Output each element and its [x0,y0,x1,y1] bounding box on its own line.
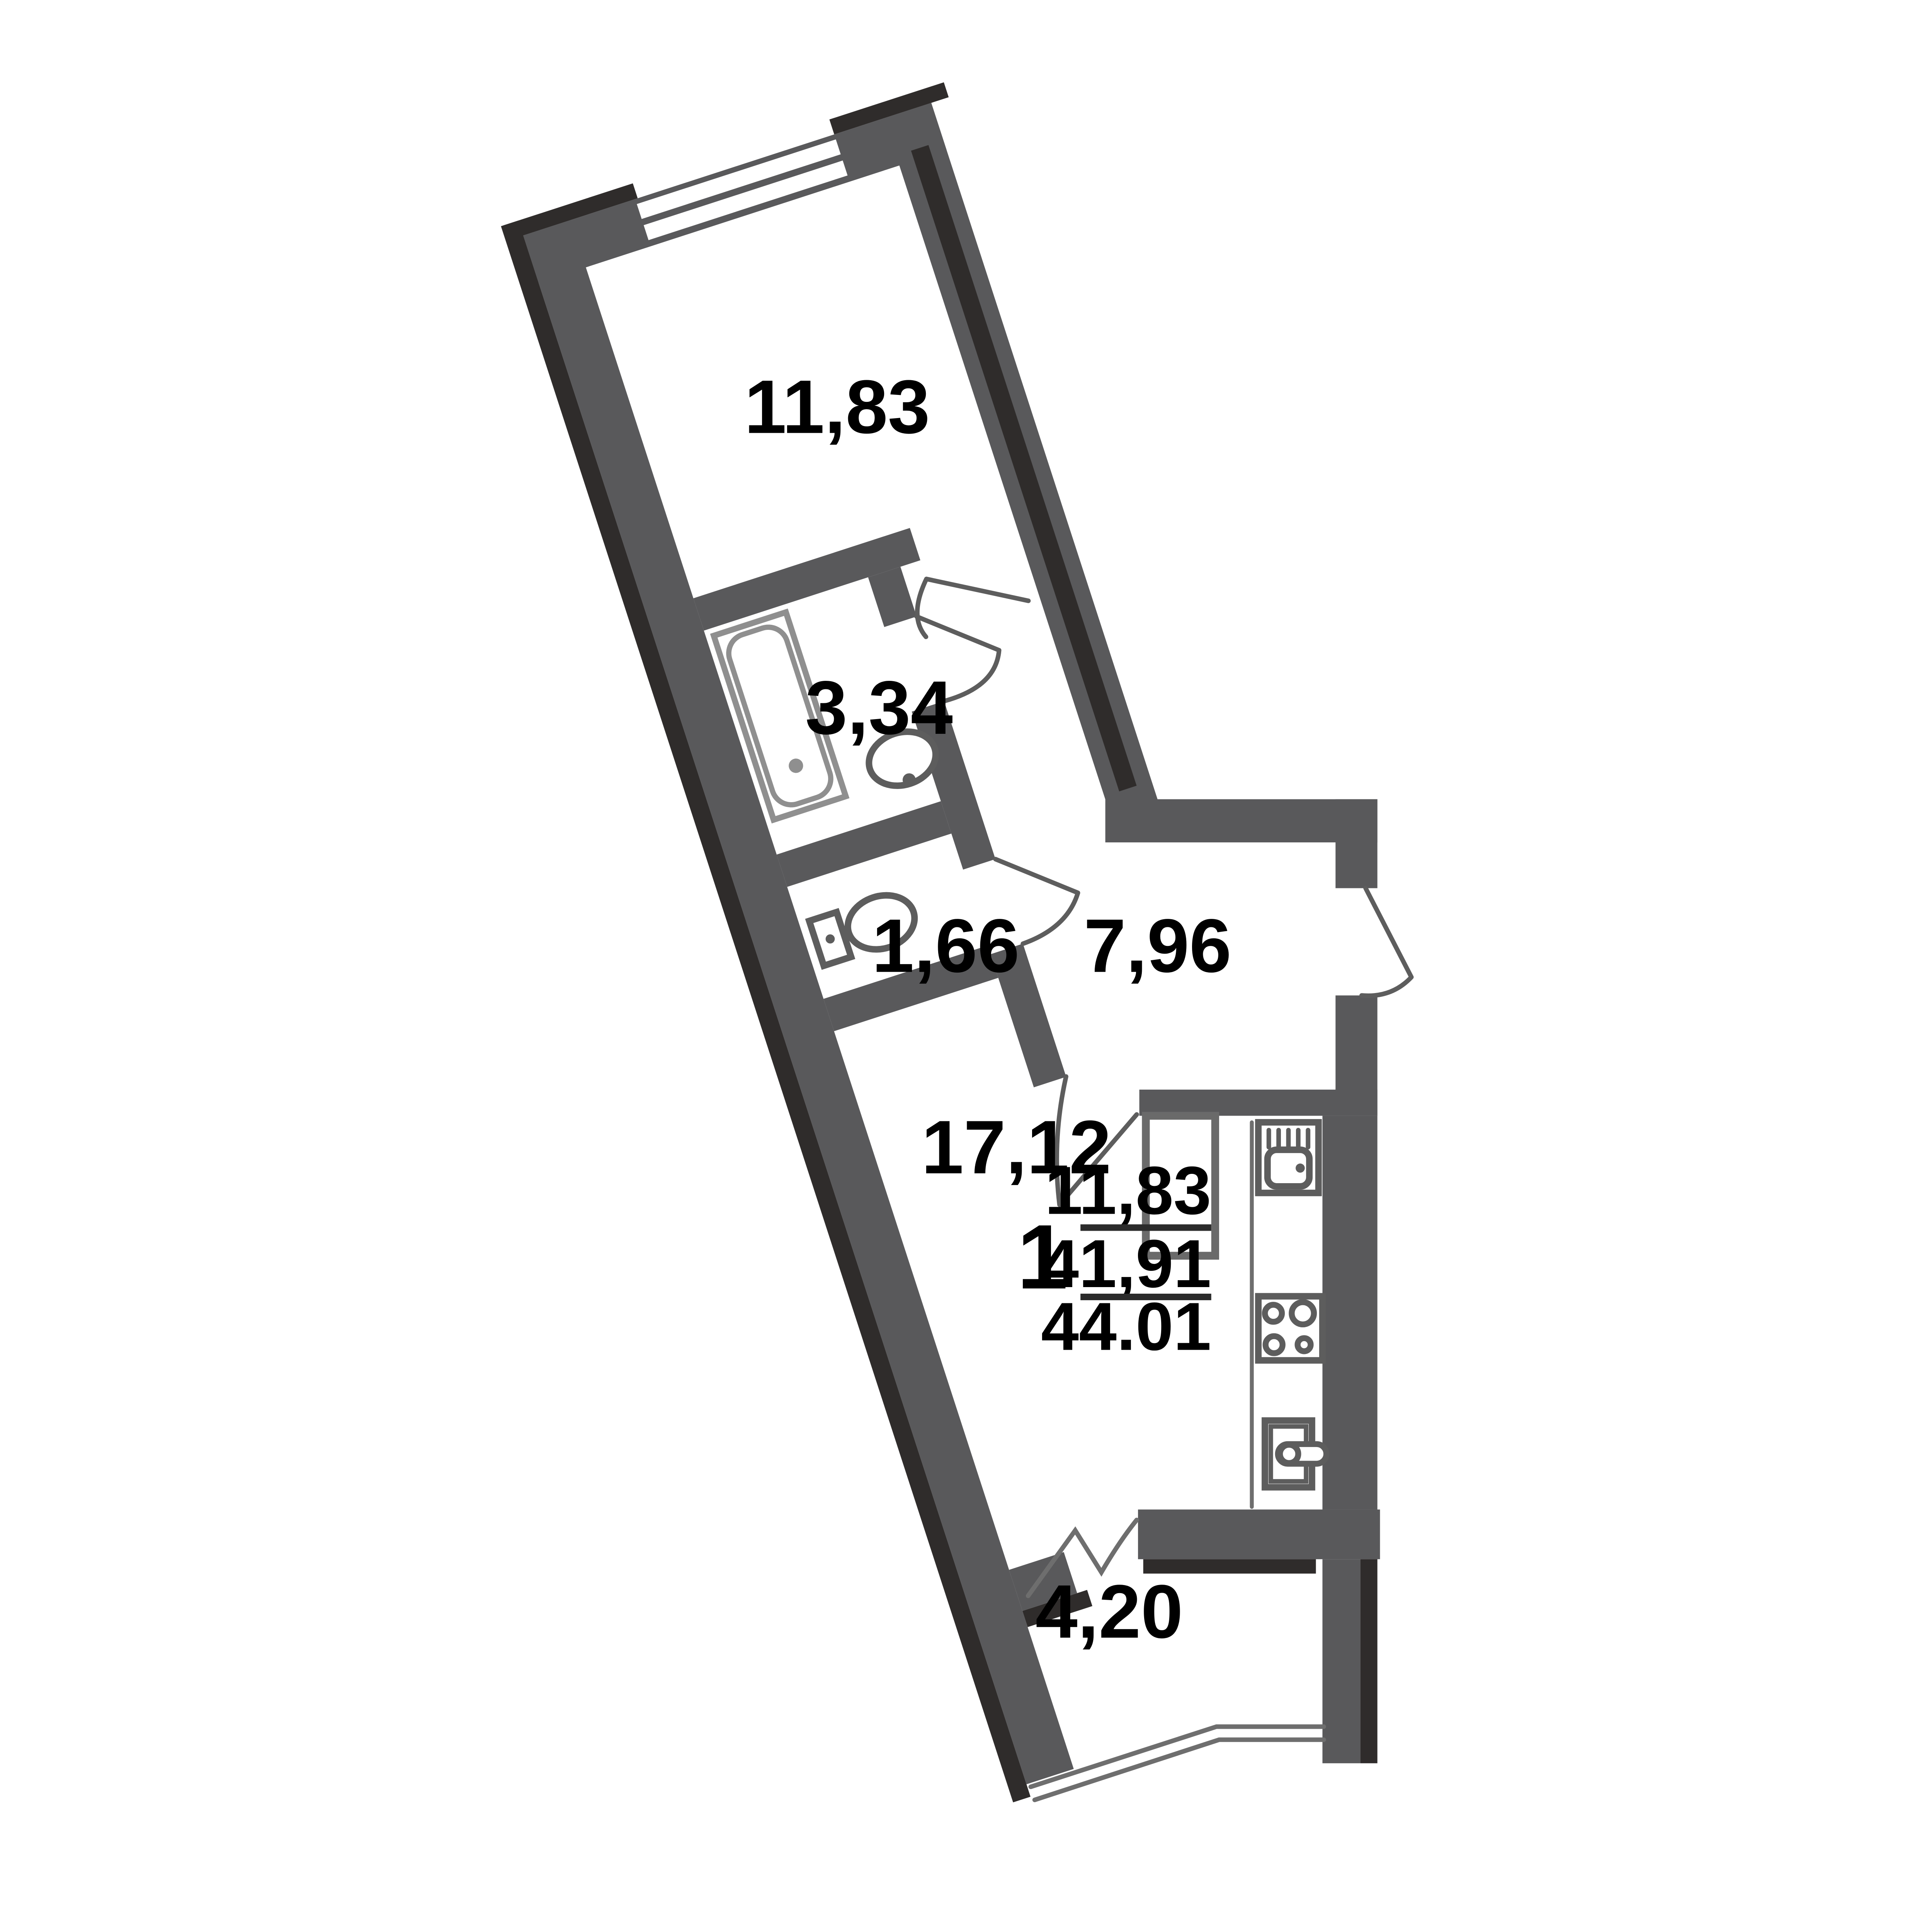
kitchen-sink-icon [1259,1122,1319,1193]
floor-plan: 11,83 3,34 1,66 7,96 17,12 4,20 1 11,83 … [0,0,1932,1932]
loggia-right-wall [1322,1559,1360,1763]
loggia-top-wall [1138,1510,1380,1560]
summary-block: 1 11,83 41,91 44.01 [1017,1153,1211,1365]
washer-door [1280,1445,1298,1463]
loggia-right-wall-shadow [1361,1559,1378,1763]
door-swing-icon [906,551,1029,638]
burner [1265,1305,1282,1322]
loggia-glazing-icon [1031,1727,1324,1787]
sink-drain [1296,1163,1305,1173]
stove-icon [1259,1296,1323,1361]
entrance-wall-upper [1335,799,1377,888]
washing-machine-icon [1265,1420,1327,1487]
left-wall-shadow [501,221,1030,1803]
living-area-value: 11,83 [1045,1153,1211,1229]
bath-corridor-wall-a [868,567,917,627]
loggia-area-label: 4,20 [1036,1569,1183,1654]
left-exterior-wall [523,220,1074,1784]
toilet-area-label: 1,66 [872,903,1019,988]
floor-plan-canvas: 11,83 3,34 1,66 7,96 17,12 4,20 1 11,83 … [0,0,1932,1932]
burner [1292,1302,1314,1325]
burner [1298,1338,1311,1351]
entrance-door-icon [1362,888,1412,996]
room-area-label: 11,83 [744,364,930,449]
bathroom-area-label: 3,34 [805,665,953,750]
top-exterior-wall [523,103,947,282]
hallway-area-label: 7,96 [1084,903,1231,988]
kitchen-right-wall [1322,1116,1377,1510]
bath-toilet-wall [777,801,951,887]
total-area-value: 44.01 [1041,1289,1211,1365]
burner [1265,1336,1282,1353]
